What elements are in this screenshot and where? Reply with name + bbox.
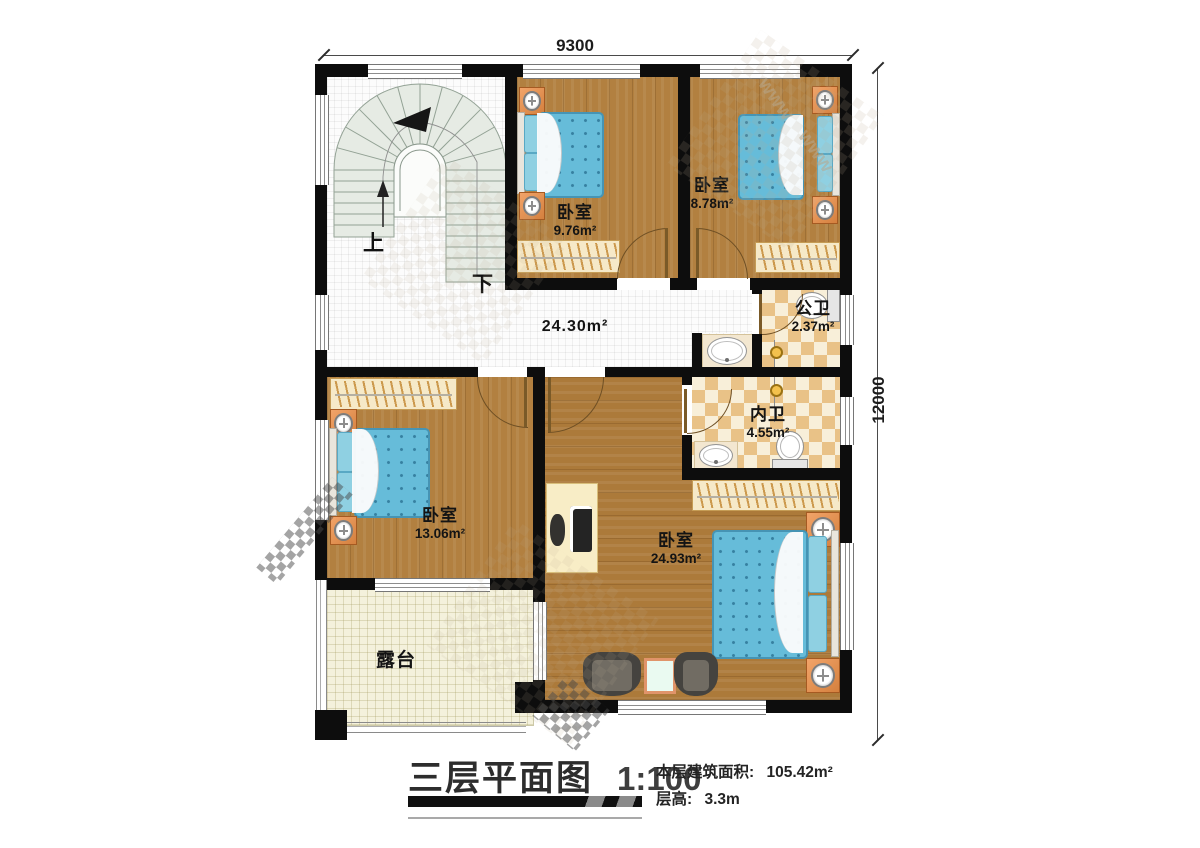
title-underline-bar [408,796,642,807]
window [368,64,462,79]
title-underline-thin [408,817,642,819]
plumbing-valve-icon [770,346,783,359]
wardrobe [692,480,842,511]
room-name: 卧室 [385,506,495,526]
lamp-icon [523,91,541,111]
dimension-height: 12000 [869,370,889,430]
room-label-master: 卧室 24.93m² [620,531,732,567]
terrace-railing [316,580,327,722]
desk-chair [550,514,565,546]
pillow [817,116,833,154]
door-leaf [665,228,668,278]
room-label-hallway: 24.30m² [520,318,630,336]
info-height-value: 3.3m [704,791,739,808]
dimension-tick [872,734,885,747]
dimension-tick [872,62,885,75]
room-label-bedroom2: 卧室 8.78m² [657,176,767,212]
window [315,295,329,350]
window [315,95,329,185]
door-leaf [759,294,762,334]
floor-plan-page: 卧室 9.76m² 卧室 8.78m² 24.30m² 公卫 2.37m² 内卫… [0,0,1200,848]
window [840,397,854,445]
terrace-glass-door [533,602,547,680]
room-label-bedroom1: 卧室 9.76m² [520,203,630,239]
window [840,543,854,650]
armchair [674,652,718,696]
stairs-up-label: 上 [363,227,384,257]
lamp-icon [334,520,353,541]
terrace-column [315,710,347,740]
room-label-inner-bath: 内卫 4.55m² [718,405,818,441]
room-name: 公卫 [766,299,860,319]
spiral-staircase [327,77,505,290]
bed-headboard [329,428,337,516]
page-title: 三层平面图 [408,750,593,801]
wardrobe [517,240,620,273]
bed-headboard [832,113,840,196]
dimension-width: 9300 [545,36,605,56]
room-name: 内卫 [718,405,818,425]
window [315,420,329,520]
room-name: 卧室 [520,203,630,223]
window [375,578,490,592]
pillow [817,154,833,192]
door-leaf [684,389,687,433]
room-name: 露台 [350,650,442,672]
room-area: 8.78m² [657,196,767,212]
info-floor-area: 本层建筑面积: 105.42m² [656,760,833,782]
window [523,64,640,79]
pillow [808,595,827,652]
tv-monitor [570,506,592,552]
side-table [644,658,676,694]
info-area-value: 105.42m² [766,764,832,781]
room-area: 4.55m² [718,425,818,441]
plumbing-valve-icon [770,384,783,397]
door-leaf [696,228,699,278]
window [618,700,766,715]
room-label-public-bath: 公卫 2.37m² [766,299,860,335]
terrace-column [515,682,545,713]
room-area: 2.37m² [766,319,860,335]
info-area-label: 本层建筑面积: [656,764,754,781]
room-name: 卧室 [657,176,767,196]
sink [707,337,747,365]
nightstand [806,658,840,693]
room-name: 卧室 [620,531,732,551]
room-area: 13.06m² [385,526,495,542]
room-area: 24.30m² [520,318,630,336]
wardrobe [755,242,840,273]
info-floor-height: 层高: 3.3m [656,787,740,809]
armchair [583,652,641,696]
nightstand [812,196,838,224]
bed-sheet [778,115,803,195]
bed-sheet [774,532,803,653]
bed-headboard [831,530,839,657]
door-leaf [524,377,527,427]
stairs-down-label: 下 [472,268,493,298]
terrace-railing [316,722,526,733]
room-area: 9.76m² [520,223,630,239]
pillow [808,536,827,593]
room-label-bedroom3: 卧室 13.06m² [385,506,495,542]
nightstand [330,516,357,545]
sink [699,444,733,467]
lamp-icon [811,663,835,688]
info-height-label: 层高: [656,791,692,808]
room-label-terrace: 露台 [350,650,442,672]
door-leaf [548,377,551,432]
window [700,64,800,79]
nightstand [519,87,545,115]
room-area: 24.93m² [620,551,732,567]
wardrobe [330,378,457,410]
lamp-icon [816,90,834,110]
lamp-icon [816,200,834,220]
nightstand [812,86,838,114]
